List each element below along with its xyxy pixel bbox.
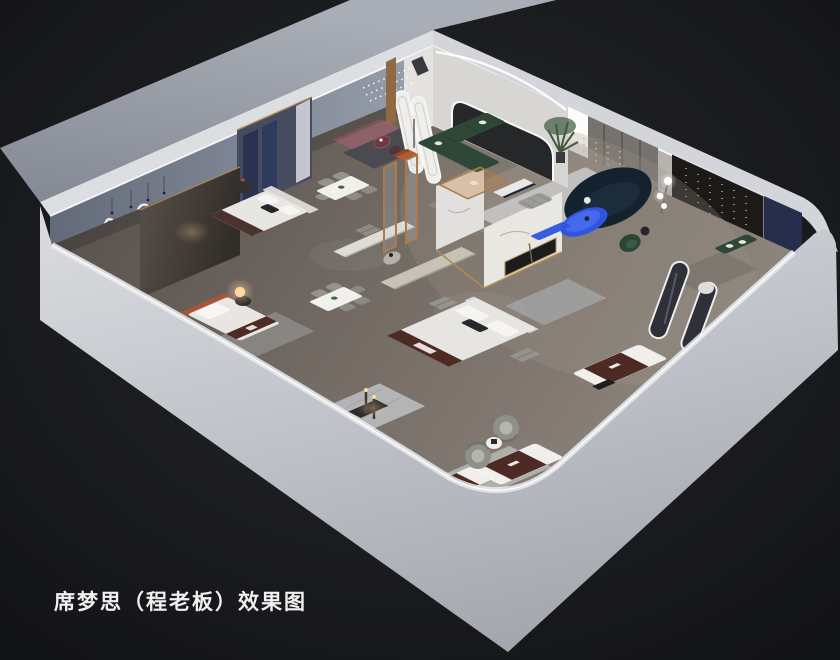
stool-white [698,282,714,294]
barrel-chair [465,443,491,469]
glass-partition [384,162,396,252]
side-table-white [486,437,502,449]
wall-glow [174,220,210,244]
wood-door-frame [386,57,396,127]
caption-title: 席梦思（程老板）效果图 [54,586,307,616]
wall-lamp-bulb [527,239,532,244]
table-decor [379,138,382,141]
barrel-chair [493,415,519,441]
glass-partition [406,155,417,243]
render-image: 席梦思（程老板）效果图 [0,0,840,660]
floor-lamp-bulb [412,115,416,119]
decor-red [241,178,244,181]
curtain-sheer [296,99,310,183]
showroom-render [0,0,840,660]
lamp-glow [226,278,254,306]
stool-dark [641,227,650,236]
sculpture [389,253,393,257]
